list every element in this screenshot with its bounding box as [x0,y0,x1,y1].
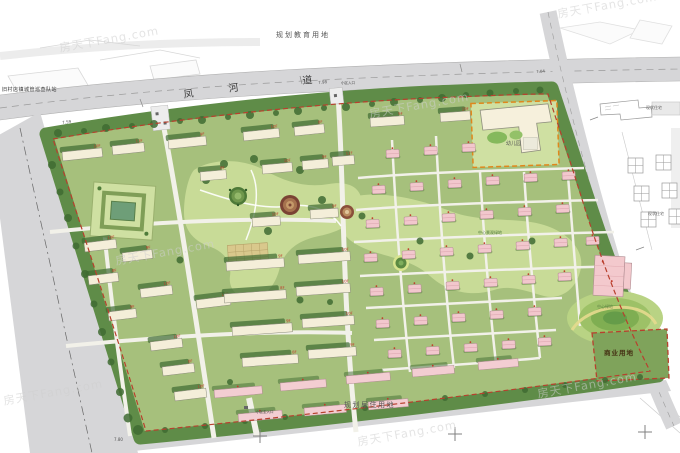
tree [637,374,643,380]
building-body [440,111,471,122]
label-existing-top: 现状住宅 [646,106,662,110]
floor-label: 9F [278,253,283,258]
floor-label: 8F [318,119,323,124]
building-body [302,159,329,170]
entrance-north-2 [329,87,344,104]
floor-label: 9F [322,154,327,159]
building-slab: 10F [250,211,281,227]
tree [537,87,544,94]
floor-label: 10F [93,143,100,149]
building-slab: 8F [198,165,227,181]
floor-label: 10F [342,278,349,283]
building-body [252,216,281,227]
tree [417,238,424,245]
tree [227,379,233,385]
floor-label: 10F [462,106,469,111]
tree [57,189,64,196]
label-central-green: 中心景观绿地 [478,231,502,235]
label-entrance-north: 小区入口 [341,82,355,86]
label-entrance-main: 小区主入口 [256,411,274,415]
tree [342,103,350,111]
building-slab: 9F [308,203,339,219]
tree [48,161,56,169]
tree [318,196,326,204]
label-station: 旧村店镇城管巡查队站 [2,88,57,93]
floor-label: 8F [220,165,225,170]
tree [64,214,72,222]
floor-label: 9F [350,342,355,347]
tree [124,414,133,423]
tree [177,118,183,124]
plaza-circle-east [280,195,300,215]
floor-label: 10F [163,280,171,286]
building-slab: 9F [368,111,405,127]
tree [250,155,258,163]
floor-label: 10F [342,246,349,251]
tree [116,388,124,396]
floor-label: 9F [130,304,135,310]
building-slab: 10F [438,106,471,122]
building-body [332,155,355,166]
label-existing-bottom: 现状住宅 [648,212,664,216]
floor-label: 9F [332,203,337,208]
floor-label: 9F [146,245,151,251]
tree [91,301,98,308]
tree [54,129,62,137]
building-slab: 10F [260,157,293,174]
tree [297,297,304,304]
floor-label: 9F [286,318,291,323]
label-commercial-land: 商业用地 [604,350,634,357]
tree [359,213,366,220]
floor-label: 8F [112,268,117,274]
formal-garden [90,182,156,240]
survey-cross [638,425,652,439]
kindergarten-parcel [471,101,559,168]
floor-label: 10F [197,383,205,389]
tree [273,110,279,116]
tree [482,391,488,397]
building-slab: 9F [300,154,329,170]
tree [467,253,474,260]
floor-label: 10F [173,333,181,339]
floor-label: 10F [270,123,277,129]
floor-label: 9F [398,111,403,116]
floor-label: 8F [188,358,193,364]
tree [133,425,143,435]
tree [98,328,106,336]
site-plan-canvas: 10F11F9F10F8F9F10F8F10F9F11F10F9F10F9F8F… [0,0,680,453]
elevation-number: 7.80 [114,438,123,442]
tree [463,92,469,98]
floor-label: 11F [345,150,352,156]
label-planning-residential: 规划居住用地 [344,402,395,409]
tree [202,423,208,429]
road-name-char: 河 [228,84,239,95]
floor-label: 10F [107,234,115,240]
building-slab: 11F [330,150,355,166]
label-kindergarten: 幼儿园 [506,142,521,147]
road-name-char: 凤 [183,90,194,101]
band-node-west [340,205,354,219]
floor-label: 10F [283,157,290,163]
tree [108,359,115,366]
floor-label: 9F [200,131,205,136]
survey-cross [448,427,462,441]
tree [177,257,184,264]
tree [321,105,327,111]
label-hill-green: 中心绿地 [597,305,613,309]
tree [162,427,168,433]
floor-label: 10F [272,211,279,216]
road-name-char: 道 [302,76,313,87]
floor-label: 8F [292,349,297,354]
floor-label: 8F [280,285,285,290]
floor-label: 10F [346,310,353,315]
label-planning-education: 规划教育用地 [276,32,330,39]
tree [73,243,80,250]
building-body [310,208,339,219]
existing-buildings-east [600,100,680,250]
tree [264,227,272,235]
building-body [200,170,227,181]
tree [513,88,519,94]
tree [327,299,333,305]
elevation-number: 7.04 [536,69,545,74]
tree [529,238,536,245]
site-plan-screenshot: 10F11F9F10F8F9F10F8F10F9F11F10F9F10F9F8F… [0,0,680,453]
floor-label: 11F [135,138,142,144]
